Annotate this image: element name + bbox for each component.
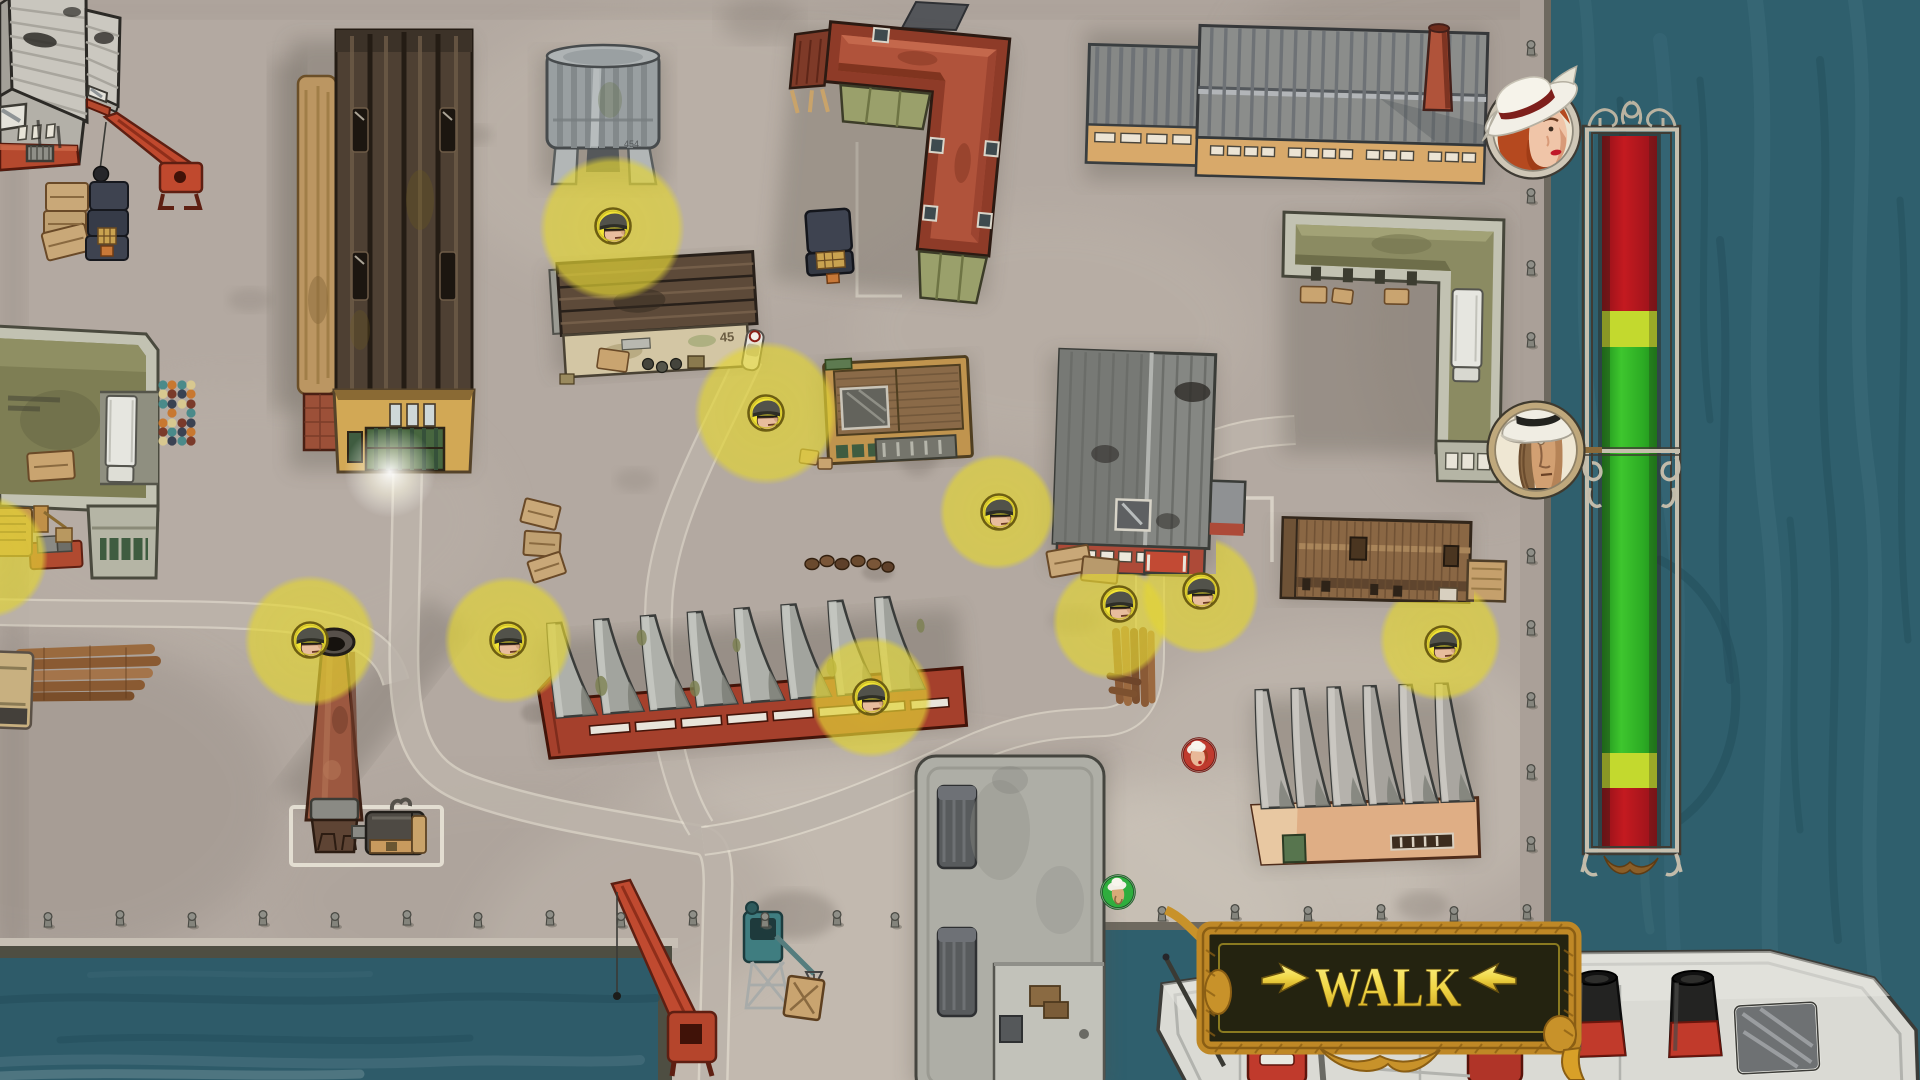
svg-text:454: 454 [624,139,639,149]
svg-text:WALK: WALK [1315,957,1463,1019]
svg-text:45: 45 [719,329,734,345]
